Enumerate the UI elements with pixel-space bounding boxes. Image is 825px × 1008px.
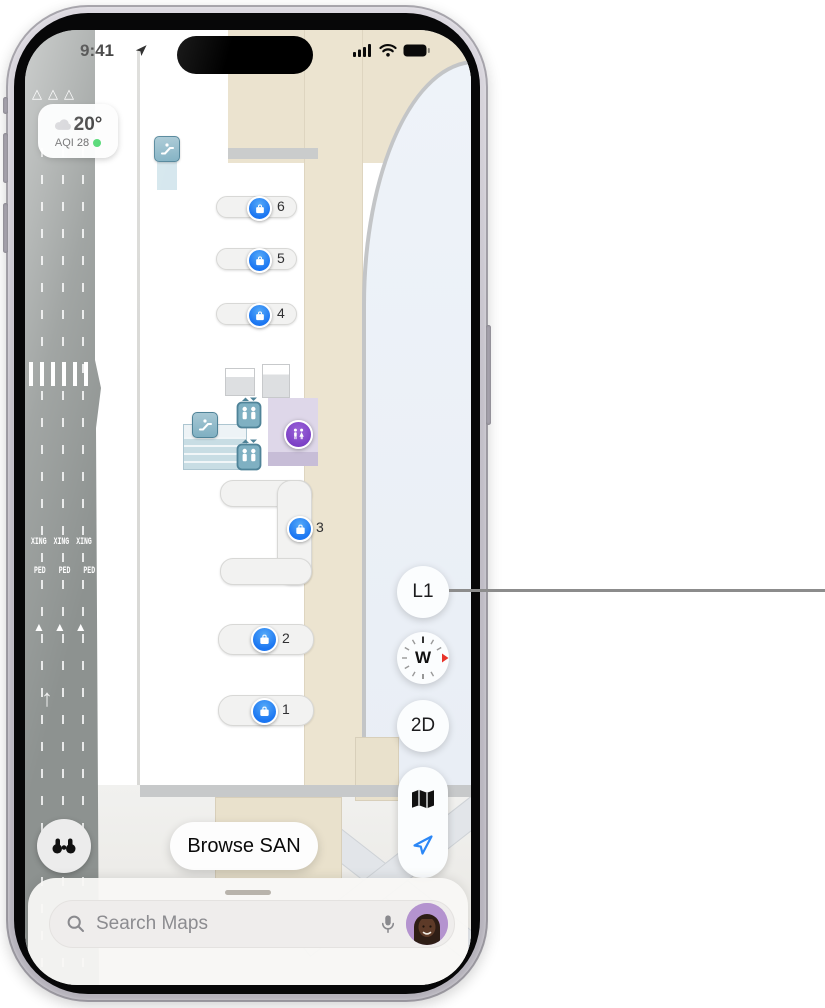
search-icon: [66, 914, 86, 934]
screen: △△△ XINGXINGXING PEDPEDPED ▲▲▲ ↑: [25, 30, 471, 985]
power-button[interactable]: [486, 325, 491, 425]
current-location-button[interactable]: [411, 833, 435, 857]
elevator-icon[interactable]: [236, 397, 262, 429]
binoculars-icon: [51, 835, 77, 857]
profile-avatar[interactable]: [406, 903, 448, 945]
carousel-number: 5: [277, 250, 285, 266]
carousel-number: 1: [282, 701, 290, 717]
road-chevrons: △△△: [32, 86, 74, 102]
iphone-frame: △△△ XINGXINGXING PEDPEDPED ▲▲▲ ↑: [6, 5, 488, 1002]
chevron-outline-icon: △: [48, 86, 58, 102]
volume-up-button[interactable]: [3, 133, 8, 183]
map-mode-pill: [398, 767, 448, 878]
baggage-claim-marker[interactable]: [247, 248, 272, 273]
compass-north-needle: [442, 654, 449, 663]
ped-markings: PEDPEDPED: [34, 567, 95, 574]
compass-heading: W: [415, 648, 431, 668]
figure-canvas: △△△ XINGXINGXING PEDPEDPED ▲▲▲ ↑: [0, 0, 825, 1008]
search-input[interactable]: [94, 912, 370, 936]
wifi-icon: [379, 43, 397, 57]
mute-switch[interactable]: [3, 97, 8, 114]
xing-markings: XINGXINGXING: [31, 538, 92, 545]
interior-block: [262, 364, 290, 398]
chevron-outline-icon: △: [64, 86, 74, 102]
map-icon: [410, 788, 436, 810]
baggage-claim-marker[interactable]: [251, 698, 278, 725]
view-mode-button[interactable]: 2D: [397, 700, 449, 752]
carousel-number: 3: [316, 519, 324, 535]
yield-triangle-icon: ▲: [75, 620, 87, 634]
restroom-zone-wall: [268, 452, 318, 466]
l1-callout-line: [449, 589, 825, 592]
baggage-claim-marker[interactable]: [247, 303, 272, 328]
status-time: 9:41: [65, 41, 129, 61]
wall-segment: [228, 148, 318, 159]
floor-level-button[interactable]: L1: [397, 566, 449, 618]
baggage-claim-marker[interactable]: [251, 626, 278, 653]
cloud-icon: [54, 118, 72, 131]
microphone-icon[interactable]: [378, 913, 398, 935]
escalator-icon[interactable]: [154, 136, 180, 162]
direction-arrow-icon: ↑: [41, 685, 53, 713]
carousel-number: 6: [277, 198, 285, 214]
chevron-outline-icon: △: [32, 86, 42, 102]
cellular-signal-icon: [353, 43, 373, 57]
location-active-icon: [134, 43, 148, 62]
elevator-icon[interactable]: [236, 439, 262, 471]
map-mode-button[interactable]: [410, 788, 436, 810]
bottom-sheet: [28, 878, 468, 985]
baggage-claim-marker[interactable]: [287, 516, 313, 542]
yield-triangle-icon: ▲: [54, 620, 66, 634]
battery-icon: [403, 44, 430, 57]
temperature: 20°: [74, 114, 103, 136]
weather-widget[interactable]: 20° AQI 28: [38, 104, 118, 158]
look-around-button[interactable]: [37, 819, 91, 873]
aqi-label: AQI 28: [55, 137, 89, 149]
baggage-claim-marker[interactable]: [247, 196, 272, 221]
status-icons: [353, 43, 430, 57]
dynamic-island: [177, 36, 313, 74]
wall-segment: [137, 50, 140, 785]
search-bar: [49, 900, 455, 948]
yield-triangles: ▲▲▲: [33, 620, 87, 634]
restroom-icon[interactable]: [284, 420, 313, 449]
browse-venue-button[interactable]: Browse SAN: [170, 822, 318, 870]
crosswalk: [29, 362, 93, 386]
carousel-number: 4: [277, 305, 285, 321]
volume-down-button[interactable]: [3, 203, 8, 253]
sheet-drag-handle[interactable]: [225, 890, 271, 895]
interior-block: [225, 368, 255, 396]
escalator-icon[interactable]: [192, 412, 218, 438]
compass[interactable]: W: [397, 632, 449, 684]
yield-triangle-icon: ▲: [33, 620, 45, 634]
carousel-number: 2: [282, 630, 290, 646]
aqi-status-dot: [93, 139, 101, 147]
location-arrow-icon: [411, 833, 435, 857]
escalator-footprint: [157, 160, 177, 190]
